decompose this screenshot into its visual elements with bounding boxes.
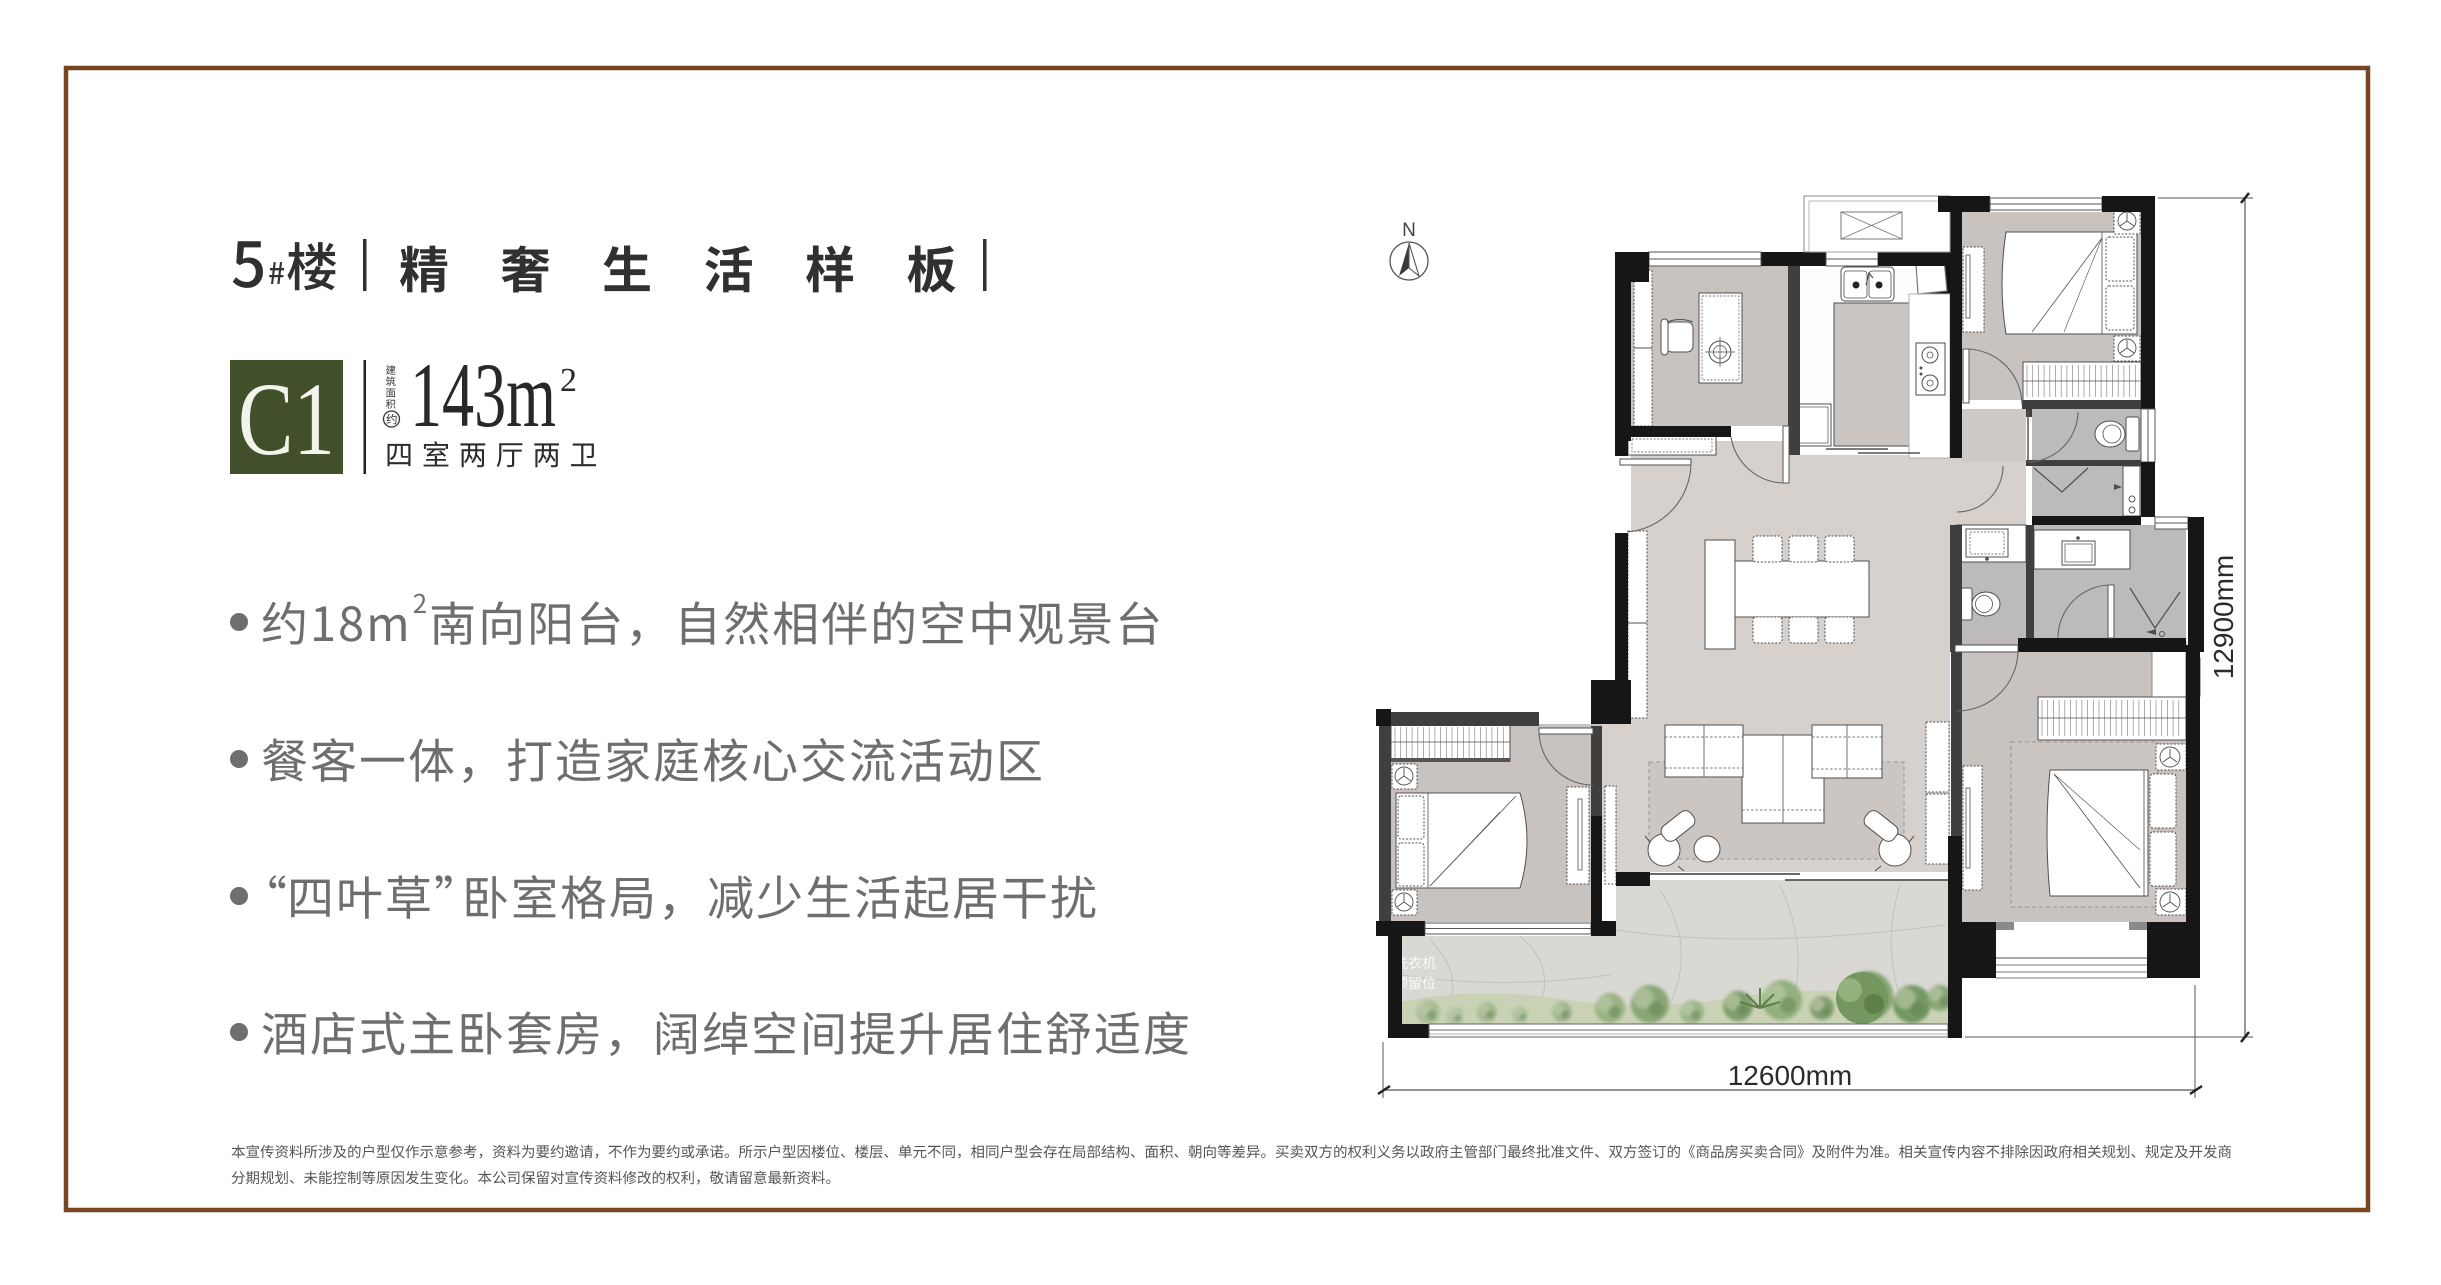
svg-text:C1: C1 — [238, 362, 335, 477]
svg-text:12600mm: 12600mm — [1728, 1060, 1853, 1091]
svg-text:N: N — [1402, 220, 1416, 241]
svg-text:12900mm: 12900mm — [2208, 555, 2239, 680]
svg-text:2: 2 — [560, 362, 577, 399]
svg-text:143m: 143m — [410, 344, 556, 446]
